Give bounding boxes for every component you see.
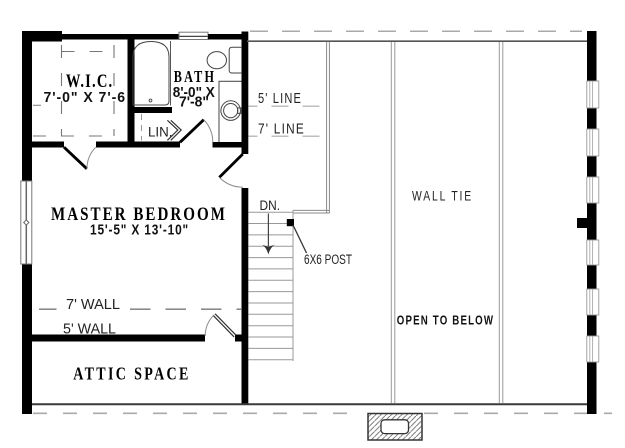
svg-text:DN.: DN. xyxy=(260,198,281,213)
svg-text:5' LINE: 5' LINE xyxy=(258,91,302,107)
svg-text:7' LINE: 7' LINE xyxy=(258,122,305,138)
svg-text:BATH: BATH xyxy=(174,67,216,86)
svg-text:7' WALL: 7' WALL xyxy=(66,297,120,313)
svg-text:5' WALL: 5' WALL xyxy=(63,321,116,337)
svg-text:6X6 POST: 6X6 POST xyxy=(304,252,352,267)
svg-text:ATTIC SPACE: ATTIC SPACE xyxy=(73,363,191,383)
svg-text:7'-8": 7'-8" xyxy=(179,94,209,110)
svg-text:15'-5" X 13'-10": 15'-5" X 13'-10" xyxy=(90,223,189,239)
svg-text:WALL TIE: WALL TIE xyxy=(412,187,473,203)
svg-text:7'-0" X 7'-6: 7'-0" X 7'-6 xyxy=(44,89,127,106)
svg-text:OPEN TO BELOW: OPEN TO BELOW xyxy=(397,314,494,328)
svg-text:LIN.: LIN. xyxy=(148,123,173,139)
